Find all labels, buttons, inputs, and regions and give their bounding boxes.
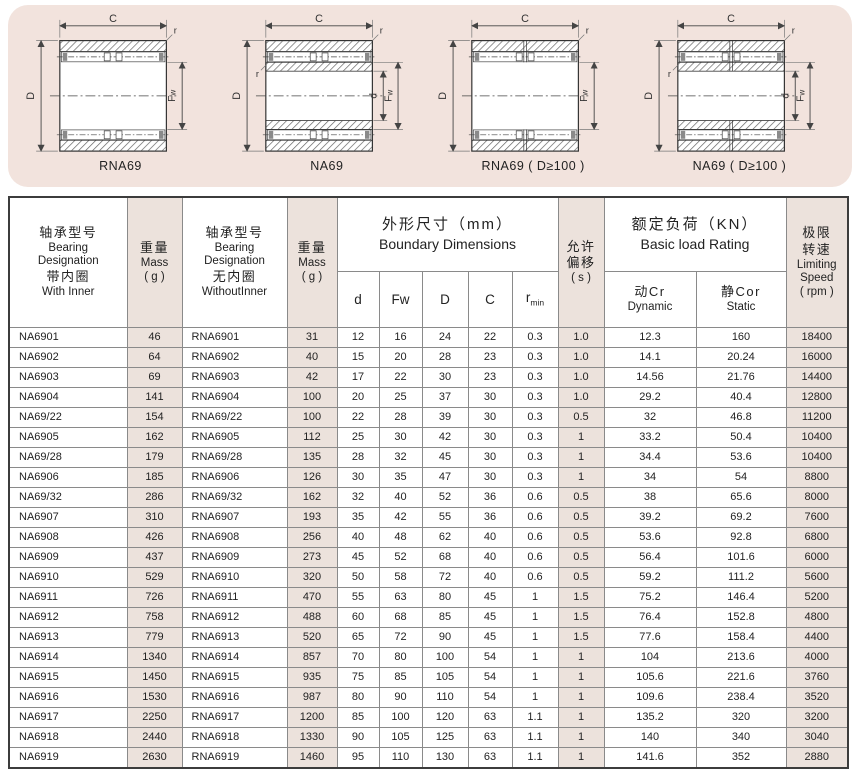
table-row: NA69/22154RNA69/22100222839300.30.53246.… <box>9 407 848 427</box>
cell-value: 6000 <box>786 547 848 567</box>
header-allowable-offset: 允许 偏移 ( s ) <box>558 197 604 327</box>
cell-value: 1.0 <box>558 387 604 407</box>
cell-value: 95 <box>337 747 379 768</box>
cell-value: 256 <box>287 527 337 547</box>
cell-value: 85 <box>379 667 422 687</box>
cell-value: 77.6 <box>604 627 696 647</box>
cell-value: 30 <box>337 467 379 487</box>
cell-value: 112 <box>287 427 337 447</box>
cell-designation-na: NA69/32 <box>9 487 127 507</box>
cell-value: 60 <box>337 607 379 627</box>
header-unit-text: ( g ) <box>288 271 337 285</box>
cell-value: 8800 <box>786 467 848 487</box>
table-row: NA69151450RNA691593575851055411105.6221.… <box>9 667 848 687</box>
cell-value: 50 <box>337 567 379 587</box>
cell-value: 1 <box>558 467 604 487</box>
cell-designation-na: NA6909 <box>9 547 127 567</box>
diagram-caption: NA69 ( D≥100 ) <box>693 159 787 173</box>
cell-value: 48 <box>379 527 422 547</box>
cell-value: 5600 <box>786 567 848 587</box>
cell-value: 100 <box>422 647 468 667</box>
header-en-text: Boundary Dimensions <box>338 235 558 253</box>
cell-value: 65 <box>337 627 379 647</box>
diagram-caption: RNA69 <box>99 159 142 173</box>
cell-value: 68 <box>422 547 468 567</box>
cell-designation-rna: RNA6902 <box>182 347 287 367</box>
cell-designation-na: NA6904 <box>9 387 127 407</box>
cell-value: 31 <box>287 327 337 347</box>
cell-value: 100 <box>379 707 422 727</box>
header-zh-text: 允许 <box>559 239 604 256</box>
cell-value: 2250 <box>127 707 182 727</box>
cell-value: 21.76 <box>696 367 786 387</box>
cell-value: 40 <box>468 567 512 587</box>
cell-value: 1450 <box>127 667 182 687</box>
svg-text:C: C <box>728 13 736 25</box>
cell-designation-rna: RNA69/28 <box>182 447 287 467</box>
cell-designation-na: NA6914 <box>9 647 127 667</box>
cell-value: 0.3 <box>512 367 558 387</box>
dim-label: Fw <box>392 292 410 307</box>
cell-value: 162 <box>287 487 337 507</box>
dim-label: d <box>354 292 362 307</box>
catalog-page: { "diagram_panel": { "bg": "#f2e3dd", "d… <box>0 5 860 777</box>
cell-value: 14.1 <box>604 347 696 367</box>
cell-value: 0.3 <box>512 447 558 467</box>
cell-value: 45 <box>468 627 512 647</box>
cell-value: 141 <box>127 387 182 407</box>
cell-value: 39.2 <box>604 507 696 527</box>
cell-designation-rna: RNA6910 <box>182 567 287 587</box>
header-en-text: Limiting <box>787 259 848 273</box>
cell-value: 110 <box>422 687 468 707</box>
cell-value: 105 <box>379 727 422 747</box>
cell-value: 90 <box>379 687 422 707</box>
cell-value: 0.3 <box>512 347 558 367</box>
cell-value: 65.6 <box>696 487 786 507</box>
cell-value: 10400 <box>786 447 848 467</box>
cell-value: 28 <box>337 447 379 467</box>
table-row: NA69192630RNA6919146095110130631.11141.6… <box>9 747 848 768</box>
cell-value: 126 <box>287 467 337 487</box>
cell-value: 20.24 <box>696 347 786 367</box>
cell-value: 520 <box>287 627 337 647</box>
cell-value: 100 <box>287 407 337 427</box>
svg-text:r: r <box>792 26 795 36</box>
table-row: NA69/28179RNA69/28135283245300.3134.453.… <box>9 447 848 467</box>
cell-value: 53.6 <box>696 447 786 467</box>
cell-value: 529 <box>127 567 182 587</box>
svg-text:d: d <box>781 93 792 98</box>
cell-value: 22 <box>379 367 422 387</box>
header-dim-fw: Fw <box>379 271 422 327</box>
cell-value: 470 <box>287 587 337 607</box>
cell-value: 46 <box>127 327 182 347</box>
table-row: NA69161530RNA691698780901105411109.6238.… <box>9 687 848 707</box>
cell-value: 30 <box>422 367 468 387</box>
cell-value: 221.6 <box>696 667 786 687</box>
cell-value: 90 <box>337 727 379 747</box>
cell-designation-rna: RNA6906 <box>182 467 287 487</box>
cell-value: 3520 <box>786 687 848 707</box>
cell-designation-na: NA69/28 <box>9 447 127 467</box>
cell-value: 80 <box>337 687 379 707</box>
cell-designation-na: NA6915 <box>9 667 127 687</box>
cell-value: 40.4 <box>696 387 786 407</box>
cell-value: 1.5 <box>558 607 604 627</box>
cell-value: 857 <box>287 647 337 667</box>
cell-value: 1 <box>512 687 558 707</box>
cell-designation-na: NA6918 <box>9 727 127 747</box>
cell-value: 135 <box>287 447 337 467</box>
header-unit-text: ( rpm ) <box>787 286 848 300</box>
cell-value: 213.6 <box>696 647 786 667</box>
cell-designation-na: NA6903 <box>9 367 127 387</box>
cell-value: 55 <box>422 507 468 527</box>
header-limiting-speed: 极限 转速 Limiting Speed ( rpm ) <box>786 197 848 327</box>
cell-value: 39 <box>422 407 468 427</box>
cell-value: 1 <box>512 627 558 647</box>
cell-value: 90 <box>422 627 468 647</box>
header-dim-C: C <box>468 271 512 327</box>
header-boundary-dimensions: 外形尺寸（mm） Boundary Dimensions <box>337 197 558 271</box>
header-dynamic-cr: 动Cr Dynamic <box>604 271 696 327</box>
header-en-text: Designation <box>10 255 127 269</box>
header-dim-rmin: rmin <box>512 271 558 327</box>
cell-value: 2440 <box>127 727 182 747</box>
cell-value: 320 <box>287 567 337 587</box>
header-zh-text: 静Cor <box>697 284 786 301</box>
cell-value: 125 <box>422 727 468 747</box>
svg-text:C: C <box>315 13 323 25</box>
bearing-cross-section: CrDFw <box>433 11 633 159</box>
cell-value: 76.4 <box>604 607 696 627</box>
bearing-cross-section: CrDrdFw <box>639 11 839 159</box>
cell-value: 286 <box>127 487 182 507</box>
header-basic-load-rating: 额定负荷（KN） Basic load Rating <box>604 197 786 271</box>
table-row: NA690146RNA690131121624220.31.012.316018… <box>9 327 848 347</box>
cell-designation-rna: RNA6908 <box>182 527 287 547</box>
cell-value: 42 <box>287 367 337 387</box>
table-row: NA69182440RNA6918133090105125631.1114034… <box>9 727 848 747</box>
cell-value: 42 <box>422 427 468 447</box>
table-row: NA6904141RNA6904100202537300.31.029.240.… <box>9 387 848 407</box>
cell-value: 779 <box>127 627 182 647</box>
cell-value: 24 <box>422 327 468 347</box>
cell-value: 52 <box>379 547 422 567</box>
cell-designation-rna: RNA6912 <box>182 607 287 627</box>
table-row: NA690369RNA690342172230230.31.014.5621.7… <box>9 367 848 387</box>
cell-value: 110 <box>379 747 422 768</box>
svg-text:Fw: Fw <box>796 90 807 102</box>
header-zh-text: 轴承型号 <box>10 225 127 242</box>
cell-designation-na: NA6901 <box>9 327 127 347</box>
svg-text:D: D <box>437 92 449 100</box>
bearing-cross-section: CrDrdFw <box>227 11 427 159</box>
cell-designation-rna: RNA6903 <box>182 367 287 387</box>
cell-value: 1 <box>558 727 604 747</box>
cell-value: 30 <box>379 427 422 447</box>
cell-value: 1 <box>558 667 604 687</box>
header-designation-with-inner: 轴承型号 Bearing Designation 带内圈 With Inner <box>9 197 127 327</box>
cell-designation-rna: RNA6909 <box>182 547 287 567</box>
cell-designation-rna: RNA6916 <box>182 687 287 707</box>
cell-value: 2880 <box>786 747 848 768</box>
cell-value: 109.6 <box>604 687 696 707</box>
cell-value: 193 <box>287 507 337 527</box>
table-row: NA6912758RNA69124886068854511.576.4152.8… <box>9 607 848 627</box>
cell-value: 80 <box>422 587 468 607</box>
bearing-spec-table: 轴承型号 Bearing Designation 带内圈 With Inner … <box>8 196 849 769</box>
table-row: NA69/32286RNA69/32162324052360.60.53865.… <box>9 487 848 507</box>
header-en-text: Static <box>697 301 786 315</box>
cell-value: 42 <box>379 507 422 527</box>
cell-value: 50.4 <box>696 427 786 447</box>
cell-value: 1 <box>558 427 604 447</box>
cell-designation-rna: RNA6911 <box>182 587 287 607</box>
cell-value: 1.0 <box>558 367 604 387</box>
bearing-diagrams-panel: CrDFwRNA69CrDrdFwNA69CrDFwRNA69 ( D≥100 … <box>8 5 852 187</box>
cell-value: 758 <box>127 607 182 627</box>
svg-text:r: r <box>668 69 671 79</box>
cell-value: 987 <box>287 687 337 707</box>
cell-value: 100 <box>287 387 337 407</box>
dim-sub-label: min <box>530 298 544 308</box>
dim-label: C <box>485 292 495 307</box>
cell-value: 32 <box>604 407 696 427</box>
cell-value: 47 <box>422 467 468 487</box>
cell-value: 1 <box>558 747 604 768</box>
header-zh-text: 偏移 <box>559 255 604 272</box>
bearing-cross-section: CrDFw <box>21 11 221 159</box>
cell-value: 0.5 <box>558 567 604 587</box>
cell-designation-rna: RNA6918 <box>182 727 287 747</box>
cell-value: 0.3 <box>512 467 558 487</box>
cell-value: 0.5 <box>558 507 604 527</box>
cell-value: 40 <box>468 547 512 567</box>
header-zh-text: 带内圈 <box>10 269 127 286</box>
header-zh-text: 额定负荷（KN） <box>605 215 786 235</box>
cell-value: 54 <box>468 667 512 687</box>
bearing-diagram-figure: CrDrdFwNA69 ( D≥100 ) <box>637 11 842 173</box>
cell-value: 273 <box>287 547 337 567</box>
svg-text:d: d <box>368 93 379 98</box>
cell-value: 56.4 <box>604 547 696 567</box>
cell-value: 340 <box>696 727 786 747</box>
header-zh-text: 极限 <box>787 225 848 242</box>
bearing-diagram-figure: CrDFwRNA69 <box>18 11 223 173</box>
svg-text:r: r <box>256 69 259 79</box>
header-mass-with-inner: 重量 Mass ( g ) <box>127 197 182 327</box>
header-en-text: Bearing <box>183 242 287 256</box>
cell-value: 135.2 <box>604 707 696 727</box>
cell-value: 62 <box>422 527 468 547</box>
cell-value: 30 <box>468 467 512 487</box>
cell-value: 0.3 <box>512 407 558 427</box>
svg-text:Fw: Fw <box>166 90 177 102</box>
cell-value: 14.56 <box>604 367 696 387</box>
cell-value: 45 <box>422 447 468 467</box>
cell-designation-na: NA6917 <box>9 707 127 727</box>
cell-value: 45 <box>468 587 512 607</box>
svg-text:D: D <box>644 92 656 100</box>
cell-value: 3200 <box>786 707 848 727</box>
cell-value: 69 <box>127 367 182 387</box>
cell-value: 352 <box>696 747 786 768</box>
cell-value: 104 <box>604 647 696 667</box>
cell-value: 179 <box>127 447 182 467</box>
cell-value: 488 <box>287 607 337 627</box>
cell-value: 85 <box>337 707 379 727</box>
cell-value: 20 <box>379 347 422 367</box>
cell-value: 105 <box>422 667 468 687</box>
cell-value: 140 <box>604 727 696 747</box>
cell-value: 111.2 <box>696 567 786 587</box>
cell-value: 18400 <box>786 327 848 347</box>
cell-value: 28 <box>379 407 422 427</box>
table-row: NA69141340RNA691485770801005411104213.64… <box>9 647 848 667</box>
cell-value: 29.2 <box>604 387 696 407</box>
cell-designation-rna: RNA6913 <box>182 627 287 647</box>
cell-value: 69.2 <box>696 507 786 527</box>
cell-value: 3760 <box>786 667 848 687</box>
cell-value: 1.0 <box>558 347 604 367</box>
cell-designation-na: NA6907 <box>9 507 127 527</box>
cell-value: 63 <box>468 727 512 747</box>
cell-designation-na: NA6919 <box>9 747 127 768</box>
cell-value: 17 <box>337 367 379 387</box>
cell-value: 158.4 <box>696 627 786 647</box>
cell-designation-rna: RNA6919 <box>182 747 287 768</box>
svg-text:D: D <box>25 92 37 100</box>
cell-value: 20 <box>337 387 379 407</box>
bearing-diagram-figure: CrDFwRNA69 ( D≥100 ) <box>431 11 636 173</box>
cell-value: 32 <box>337 487 379 507</box>
cell-value: 1200 <box>287 707 337 727</box>
header-zh-text: 转速 <box>787 242 848 259</box>
cell-value: 75.2 <box>604 587 696 607</box>
table-row: NA6913779RNA69135206572904511.577.6158.4… <box>9 627 848 647</box>
header-unit-text: ( g ) <box>128 271 182 285</box>
cell-value: 63 <box>379 587 422 607</box>
header-en-text: With Inner <box>10 286 127 300</box>
cell-value: 0.3 <box>512 427 558 447</box>
diagram-caption: RNA69 ( D≥100 ) <box>482 159 585 173</box>
header-unit-text: ( s ) <box>559 272 604 286</box>
cell-value: 37 <box>422 387 468 407</box>
cell-value: 437 <box>127 547 182 567</box>
header-static-cor: 静Cor Static <box>696 271 786 327</box>
cell-designation-rna: RNA6901 <box>182 327 287 347</box>
cell-value: 1340 <box>127 647 182 667</box>
cell-value: 15 <box>337 347 379 367</box>
cell-value: 105.6 <box>604 667 696 687</box>
cell-value: 1 <box>512 587 558 607</box>
cell-value: 58 <box>379 567 422 587</box>
cell-value: 146.4 <box>696 587 786 607</box>
header-zh-text: 动Cr <box>605 284 696 301</box>
cell-value: 30 <box>468 407 512 427</box>
header-en-text: Speed <box>787 272 848 286</box>
cell-designation-na: NA6912 <box>9 607 127 627</box>
svg-text:Fw: Fw <box>383 90 394 102</box>
cell-value: 23 <box>468 347 512 367</box>
cell-value: 426 <box>127 527 182 547</box>
cell-value: 4800 <box>786 607 848 627</box>
cell-value: 0.5 <box>558 407 604 427</box>
cell-designation-rna: RNA69/32 <box>182 487 287 507</box>
header-en-text: Designation <box>183 255 287 269</box>
cell-value: 59.2 <box>604 567 696 587</box>
cell-value: 23 <box>468 367 512 387</box>
cell-value: 30 <box>468 427 512 447</box>
svg-text:C: C <box>109 13 117 25</box>
cell-designation-na: NA6908 <box>9 527 127 547</box>
diagram-caption: NA69 <box>310 159 343 173</box>
cell-value: 75 <box>337 667 379 687</box>
table-row: NA6911726RNA69114705563804511.575.2146.4… <box>9 587 848 607</box>
cell-value: 45 <box>337 547 379 567</box>
cell-value: 10400 <box>786 427 848 447</box>
cell-value: 85 <box>422 607 468 627</box>
cell-value: 120 <box>422 707 468 727</box>
cell-value: 36 <box>468 487 512 507</box>
cell-value: 30 <box>468 387 512 407</box>
cell-value: 22 <box>337 407 379 427</box>
cell-value: 38 <box>604 487 696 507</box>
cell-value: 11200 <box>786 407 848 427</box>
header-en-text: Mass <box>128 257 182 271</box>
cell-value: 46.8 <box>696 407 786 427</box>
cell-value: 33.2 <box>604 427 696 447</box>
cell-designation-rna: RNA6917 <box>182 707 287 727</box>
cell-value: 36 <box>468 507 512 527</box>
cell-designation-rna: RNA6915 <box>182 667 287 687</box>
header-zh-text: 无内圈 <box>183 269 287 286</box>
cell-value: 32 <box>379 447 422 467</box>
cell-value: 935 <box>287 667 337 687</box>
cell-value: 130 <box>422 747 468 768</box>
cell-value: 30 <box>468 447 512 467</box>
cell-value: 0.6 <box>512 527 558 547</box>
cell-value: 1 <box>512 607 558 627</box>
cell-value: 0.6 <box>512 547 558 567</box>
cell-value: 141.6 <box>604 747 696 768</box>
cell-designation-na: NA6902 <box>9 347 127 367</box>
cell-designation-rna: RNA69/22 <box>182 407 287 427</box>
table-row: NA6908426RNA6908256404862400.60.553.692.… <box>9 527 848 547</box>
cell-value: 1530 <box>127 687 182 707</box>
cell-value: 0.5 <box>558 547 604 567</box>
cell-value: 70 <box>337 647 379 667</box>
cell-value: 40 <box>379 487 422 507</box>
cell-value: 1.5 <box>558 627 604 647</box>
table-row: NA69172250RNA6917120085100120631.11135.2… <box>9 707 848 727</box>
header-en-text: Basic load Rating <box>605 235 786 253</box>
cell-value: 154 <box>127 407 182 427</box>
cell-value: 35 <box>337 507 379 527</box>
cell-designation-rna: RNA6907 <box>182 507 287 527</box>
cell-designation-na: NA6906 <box>9 467 127 487</box>
cell-value: 320 <box>696 707 786 727</box>
cell-value: 12 <box>337 327 379 347</box>
header-designation-without-inner: 轴承型号 Bearing Designation 无内圈 WithoutInne… <box>182 197 287 327</box>
cell-value: 63 <box>468 747 512 768</box>
cell-value: 6800 <box>786 527 848 547</box>
cell-value: 1460 <box>287 747 337 768</box>
table-body: NA690146RNA690131121624220.31.012.316018… <box>9 327 848 768</box>
cell-value: 92.8 <box>696 527 786 547</box>
